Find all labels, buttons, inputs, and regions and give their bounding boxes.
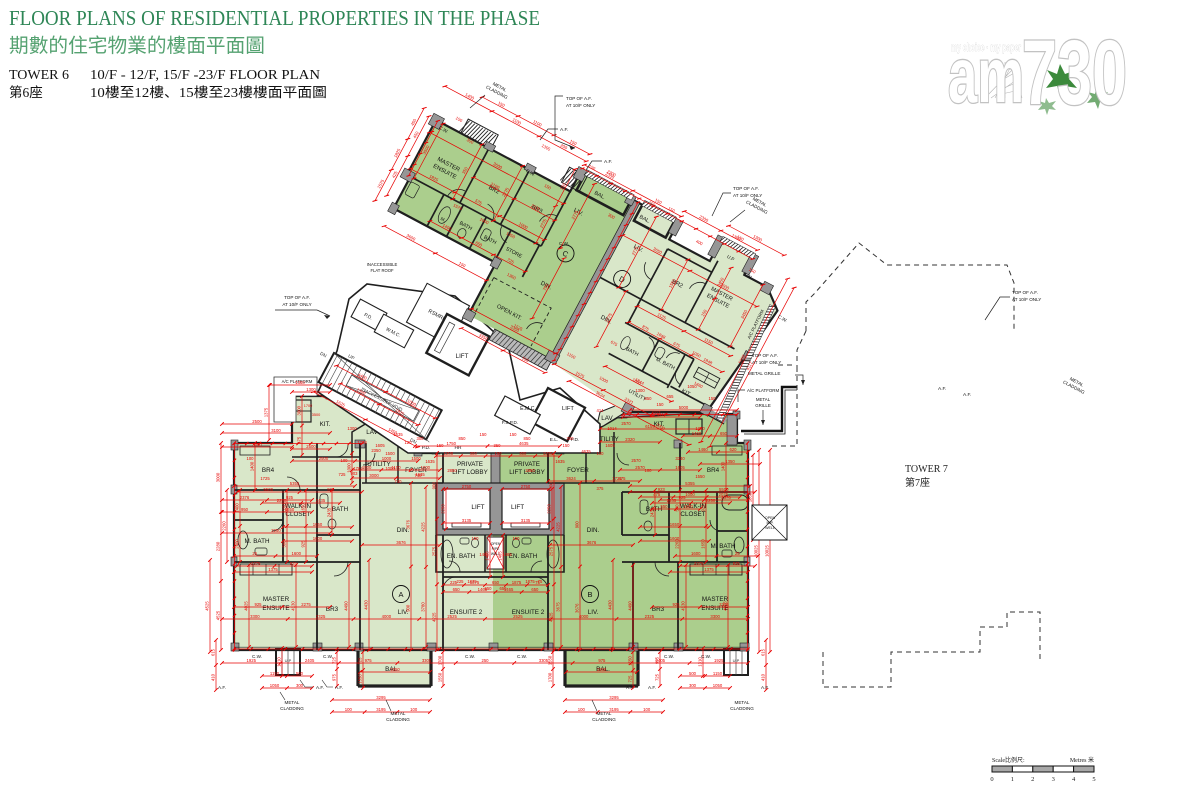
svg-text:615: 615 [761, 648, 766, 656]
svg-text:1550: 1550 [695, 474, 705, 479]
svg-text:3195: 3195 [376, 707, 386, 712]
svg-text:10025: 10025 [754, 544, 759, 556]
svg-text:1050: 1050 [270, 683, 280, 688]
svg-text:1600: 1600 [313, 536, 323, 541]
svg-text:1500: 1500 [385, 451, 395, 456]
svg-text:650: 650 [485, 586, 493, 591]
svg-text:C.W.: C.W. [465, 654, 475, 659]
svg-text:A.F.: A.F. [560, 127, 568, 133]
svg-text:BR4: BR4 [707, 467, 720, 474]
svg-text:2325: 2325 [645, 614, 655, 619]
svg-text:1300: 1300 [635, 388, 645, 393]
svg-text:100: 100 [410, 707, 418, 712]
svg-text:A.F.: A.F. [963, 392, 971, 398]
svg-text:1875: 1875 [512, 580, 522, 585]
svg-text:100: 100 [341, 458, 349, 463]
svg-text:KIT.: KIT. [320, 421, 331, 428]
svg-text:A.F.: A.F. [761, 685, 769, 690]
svg-text:150: 150 [437, 443, 445, 448]
svg-text:A.F.: A.F. [335, 685, 343, 690]
svg-text:TOP OF A.F.: TOP OF A.F. [733, 186, 759, 191]
svg-text:3100: 3100 [271, 428, 281, 433]
svg-text:2350: 2350 [371, 448, 381, 453]
svg-text:1460: 1460 [698, 447, 708, 452]
svg-text:2575: 2575 [432, 546, 437, 556]
svg-text:655: 655 [667, 394, 675, 399]
svg-text:3676: 3676 [575, 603, 580, 613]
svg-text:4025: 4025 [723, 601, 728, 611]
svg-text:DIN.: DIN. [587, 527, 600, 534]
svg-text:4000: 4000 [579, 614, 589, 619]
svg-text:500: 500 [282, 540, 287, 548]
svg-text:1200: 1200 [543, 451, 553, 456]
svg-text:AT 10/F ONLY: AT 10/F ONLY [1012, 297, 1041, 302]
svg-text:500: 500 [296, 671, 304, 676]
svg-text:TOP OF A.F.: TOP OF A.F. [752, 353, 778, 358]
svg-text:METAL GRILLE: METAL GRILLE [748, 371, 780, 376]
svg-text:1350: 1350 [725, 459, 735, 464]
svg-text:my choice · my paper: my choice · my paper [951, 42, 1021, 54]
svg-text:LIFT: LIFT [562, 406, 574, 412]
svg-text:1550: 1550 [548, 655, 553, 665]
svg-text:100: 100 [645, 468, 653, 473]
svg-text:4430: 4430 [364, 600, 369, 610]
svg-text:5355: 5355 [685, 481, 695, 486]
svg-text:4130: 4130 [291, 601, 296, 611]
svg-text:650: 650 [531, 587, 539, 592]
svg-text:2500: 2500 [319, 456, 329, 461]
svg-text:100: 100 [643, 707, 651, 712]
svg-text:1300: 1300 [347, 426, 357, 431]
svg-text:1635: 1635 [415, 472, 425, 477]
svg-text:AT 10/F ONLY: AT 10/F ONLY [282, 302, 311, 307]
svg-text:850: 850 [459, 436, 467, 441]
svg-text:4430: 4430 [608, 600, 613, 610]
svg-text:1000: 1000 [385, 466, 395, 471]
svg-text:150: 150 [494, 451, 502, 456]
svg-text:1605: 1605 [605, 443, 615, 448]
svg-text:A.F.: A.F. [938, 386, 946, 392]
svg-text:4117: 4117 [651, 410, 661, 415]
svg-text:150: 150 [510, 432, 518, 437]
svg-text:975: 975 [332, 673, 337, 681]
svg-text:METAL: METAL [756, 397, 771, 402]
svg-text:650: 650 [492, 580, 500, 585]
svg-text:MASTER: MASTER [263, 596, 290, 603]
svg-text:OPEN: OPEN [765, 516, 776, 520]
svg-text:2260: 2260 [675, 539, 680, 549]
svg-text:1400: 1400 [235, 503, 240, 513]
svg-text:925: 925 [254, 602, 262, 607]
svg-text:2570: 2570 [621, 421, 631, 426]
svg-text:150: 150 [709, 396, 717, 401]
svg-text:950: 950 [241, 507, 249, 512]
svg-text:3000: 3000 [216, 472, 221, 482]
svg-text:1200: 1200 [444, 451, 454, 456]
svg-text:650: 650 [500, 586, 508, 591]
svg-text:M. BATH: M. BATH [244, 538, 270, 545]
svg-text:975: 975 [598, 658, 606, 663]
svg-text:A/C PLATFORM: A/C PLATFORM [747, 388, 779, 393]
svg-text:WELL: WELL [765, 526, 775, 530]
svg-text:2260: 2260 [282, 503, 287, 513]
svg-text:2: 2 [1031, 776, 1034, 783]
svg-text:2400: 2400 [235, 539, 240, 549]
svg-text:1: 1 [1011, 776, 1014, 783]
svg-text:375: 375 [597, 486, 605, 491]
svg-text:300: 300 [519, 451, 527, 456]
svg-text:1050: 1050 [687, 384, 697, 389]
svg-text:150: 150 [472, 536, 480, 541]
svg-text:900: 900 [575, 521, 580, 529]
svg-text:3000: 3000 [297, 405, 302, 415]
svg-text:BR4: BR4 [262, 467, 275, 474]
svg-text:2260: 2260 [222, 521, 227, 531]
svg-text:250: 250 [481, 658, 489, 663]
svg-text:1000: 1000 [382, 456, 392, 461]
svg-text:A.F.: A.F. [316, 685, 324, 690]
svg-text:650: 650 [720, 431, 728, 436]
svg-text:2375: 2375 [251, 561, 261, 566]
svg-text:350: 350 [494, 443, 502, 448]
svg-text:5: 5 [1092, 776, 1095, 783]
svg-text:1460: 1460 [692, 431, 702, 436]
svg-text:175: 175 [297, 436, 302, 444]
svg-text:1700: 1700 [304, 404, 312, 408]
svg-text:GRILLE: GRILLE [755, 403, 771, 408]
svg-text:1550: 1550 [597, 667, 607, 672]
svg-text:300: 300 [470, 451, 478, 456]
svg-text:1050: 1050 [713, 683, 723, 688]
svg-text:LAV: LAV [601, 415, 613, 422]
svg-text:725: 725 [339, 472, 347, 477]
svg-text:900: 900 [549, 482, 554, 490]
svg-text:1800: 1800 [362, 465, 372, 470]
svg-text:300: 300 [417, 436, 425, 441]
svg-text:C.W.: C.W. [252, 654, 262, 659]
svg-text:550: 550 [660, 504, 668, 509]
svg-text:3: 3 [1052, 776, 1055, 783]
svg-text:3300: 3300 [710, 614, 720, 619]
svg-text:LIFT: LIFT [456, 353, 469, 360]
svg-text:AT 10/F ONLY: AT 10/F ONLY [566, 103, 595, 108]
svg-text:C.W.: C.W. [664, 654, 674, 659]
svg-text:1465: 1465 [479, 552, 489, 557]
svg-text:LIFT: LIFT [471, 504, 484, 511]
svg-text:TOWER 7: TOWER 7 [905, 464, 948, 475]
svg-text:1700: 1700 [548, 672, 553, 682]
svg-text:PIPE: PIPE [492, 547, 500, 551]
svg-text:1500: 1500 [411, 456, 421, 461]
svg-text:2500: 2500 [306, 444, 316, 449]
svg-text:300: 300 [567, 436, 575, 441]
svg-text:Scale比例尺:: Scale比例尺: [992, 756, 1025, 764]
svg-text:ENSUITE: ENSUITE [262, 605, 289, 612]
svg-text:3330: 3330 [675, 456, 685, 461]
svg-text:3305: 3305 [422, 658, 432, 663]
svg-text:620: 620 [729, 447, 737, 452]
svg-text:B: B [587, 590, 592, 599]
svg-text:1605: 1605 [375, 443, 385, 448]
svg-text:100: 100 [578, 707, 586, 712]
svg-text:120: 120 [405, 440, 413, 445]
svg-text:2250: 2250 [547, 504, 552, 514]
svg-text:FLOOR PLANS OF RESIDENTIAL PRO: FLOOR PLANS OF RESIDENTIAL PROPERTIES IN… [9, 6, 540, 30]
svg-text:1000: 1000 [421, 465, 431, 470]
svg-text:4000: 4000 [382, 614, 392, 619]
svg-text:100: 100 [345, 707, 353, 712]
svg-text:4225: 4225 [432, 612, 437, 622]
svg-text:100: 100 [597, 451, 605, 456]
svg-text:300: 300 [689, 683, 697, 688]
svg-text:975: 975 [365, 658, 373, 663]
svg-text:3780: 3780 [421, 602, 426, 612]
svg-text:2376: 2376 [240, 495, 250, 500]
svg-text:A: A [398, 590, 403, 599]
svg-text:期數的住宅物業的樓面平面圖: 期數的住宅物業的樓面平面圖 [9, 35, 265, 57]
svg-text:METAL: METAL [735, 700, 750, 705]
svg-text:4490: 4490 [628, 601, 633, 611]
svg-text:U.P: U.P [285, 658, 292, 663]
svg-text:615: 615 [211, 648, 216, 656]
svg-text:2500: 2500 [252, 419, 262, 424]
svg-text:第7座: 第7座 [905, 476, 930, 489]
svg-text:4225: 4225 [556, 522, 561, 532]
svg-text:2250: 2250 [441, 504, 446, 514]
svg-text:1550: 1550 [438, 672, 443, 682]
svg-text:TOP OF A.F.: TOP OF A.F. [1012, 290, 1038, 295]
svg-text:410: 410 [761, 673, 766, 681]
svg-text:C.W.: C.W. [517, 654, 527, 659]
svg-text:AT 10/F ONLY: AT 10/F ONLY [733, 193, 762, 198]
svg-text:3676: 3676 [406, 519, 411, 529]
svg-text:925: 925 [733, 561, 741, 566]
svg-text:C.W.: C.W. [323, 654, 333, 659]
svg-text:A.F.: A.F. [218, 685, 226, 690]
svg-text:1375: 1375 [704, 567, 714, 572]
svg-text:1650: 1650 [313, 522, 323, 527]
svg-text:1400: 1400 [250, 461, 255, 471]
svg-text:1550: 1550 [390, 667, 400, 672]
svg-text:475: 475 [619, 476, 627, 481]
svg-text:850: 850 [524, 436, 532, 441]
svg-text:Metres 米: Metres 米 [1070, 756, 1094, 764]
svg-text:BATH: BATH [332, 506, 349, 513]
svg-text:METAL: METAL [597, 711, 612, 716]
svg-text:1635: 1635 [425, 459, 435, 464]
svg-text:2250: 2250 [271, 528, 281, 533]
svg-text:5355: 5355 [290, 481, 300, 486]
svg-text:4130: 4130 [681, 601, 686, 611]
svg-text:CLADDING: CLADDING [592, 717, 616, 722]
svg-text:M. BATH: M. BATH [710, 543, 736, 550]
svg-text:1465: 1465 [502, 552, 512, 557]
svg-text:4635: 4635 [519, 441, 529, 446]
svg-text:1700: 1700 [438, 655, 443, 665]
svg-text:2376: 2376 [721, 495, 731, 500]
svg-text:IMP.: IMP. [767, 521, 774, 525]
svg-text:4490: 4490 [344, 601, 349, 611]
svg-text:C.W.: C.W. [559, 241, 569, 246]
svg-text:TOP OF A.F.: TOP OF A.F. [284, 295, 310, 300]
svg-text:2750: 2750 [521, 484, 531, 489]
svg-text:150: 150 [513, 536, 521, 541]
svg-text:EN. BATH: EN. BATH [447, 553, 476, 560]
svg-text:2405: 2405 [305, 658, 315, 663]
svg-text:1500: 1500 [683, 504, 693, 509]
svg-text:METAL: METAL [391, 711, 406, 716]
svg-text:1550: 1550 [628, 656, 633, 666]
svg-text:1150: 1150 [713, 671, 723, 676]
svg-text:3135: 3135 [521, 518, 531, 523]
svg-text:1875: 1875 [467, 579, 477, 584]
svg-text:3676: 3676 [396, 540, 406, 545]
svg-text:AT 10/F ONLY: AT 10/F ONLY [752, 360, 781, 365]
svg-text:FLAT ROOF: FLAT ROOF [370, 268, 394, 273]
svg-text:3300: 3300 [250, 614, 260, 619]
svg-text:900: 900 [432, 482, 437, 490]
svg-text:LIV.: LIV. [588, 609, 599, 616]
svg-text:CLADDING: CLADDING [386, 717, 410, 722]
svg-text:725: 725 [628, 675, 633, 683]
svg-text:1000: 1000 [685, 492, 695, 497]
svg-text:PRIVATE: PRIVATE [457, 461, 483, 468]
svg-text:475: 475 [653, 492, 661, 497]
svg-text:1605: 1605 [675, 465, 685, 470]
svg-text:2435: 2435 [650, 507, 655, 517]
svg-text:1375: 1375 [268, 567, 278, 572]
svg-text:414: 414 [597, 408, 605, 413]
svg-text:1150: 1150 [270, 671, 280, 676]
svg-text:2375: 2375 [694, 561, 704, 566]
svg-text:3000: 3000 [369, 473, 379, 478]
svg-text:410: 410 [211, 673, 216, 681]
svg-text:LIFT: LIFT [511, 504, 524, 511]
svg-text:2850: 2850 [525, 468, 535, 473]
svg-text:740: 740 [395, 479, 403, 484]
svg-text:2750: 2750 [462, 484, 472, 489]
svg-text:F.S.P.D.: F.S.P.D. [502, 420, 518, 425]
svg-text:1600: 1600 [292, 551, 302, 556]
svg-text:1550: 1550 [358, 674, 363, 684]
svg-text:1650: 1650 [701, 539, 706, 549]
svg-text:2320: 2320 [625, 437, 635, 442]
svg-text:1635: 1635 [393, 432, 403, 437]
svg-text:725: 725 [655, 673, 660, 681]
svg-text:LIFT LOBBY: LIFT LOBBY [452, 469, 488, 476]
svg-text:PRIVATE: PRIVATE [514, 461, 540, 468]
svg-text:1635: 1635 [555, 459, 565, 464]
svg-text:CLADDING: CLADDING [280, 706, 304, 711]
svg-text:2525: 2525 [513, 614, 523, 619]
svg-text:4525: 4525 [205, 601, 210, 611]
svg-text:2575: 2575 [549, 546, 554, 556]
svg-text:1750: 1750 [447, 441, 457, 446]
svg-text:A.F.: A.F. [648, 685, 656, 690]
svg-text:METAL: METAL [285, 700, 300, 705]
svg-text:4525: 4525 [216, 610, 221, 620]
svg-text:650: 650 [645, 396, 653, 401]
svg-text:4225: 4225 [421, 522, 426, 532]
svg-text:4225: 4225 [549, 612, 554, 622]
svg-text:975: 975 [655, 656, 660, 664]
svg-text:25: 25 [735, 551, 740, 556]
svg-text:1875: 1875 [525, 579, 535, 584]
svg-text:1014: 1014 [607, 426, 617, 431]
svg-text:E.L.: E.L. [550, 437, 559, 443]
svg-text:1600: 1600 [691, 551, 701, 556]
svg-text:75: 75 [538, 579, 543, 584]
svg-text:2325: 2325 [316, 614, 326, 619]
svg-text:2525: 2525 [447, 614, 457, 619]
svg-text:TOP OF A.F.: TOP OF A.F. [566, 96, 592, 101]
svg-text:1650: 1650 [301, 503, 306, 513]
svg-text:6155: 6155 [645, 424, 655, 429]
svg-text:730: 730 [1022, 22, 1127, 124]
svg-text:1400: 1400 [721, 461, 726, 471]
svg-text:3500: 3500 [312, 413, 320, 417]
svg-text:500: 500 [689, 671, 697, 676]
svg-text:925: 925 [678, 495, 686, 500]
svg-text:3295: 3295 [609, 695, 619, 700]
svg-text:1650: 1650 [670, 522, 680, 527]
svg-text:150: 150 [563, 443, 571, 448]
svg-text:1310: 1310 [277, 657, 282, 667]
svg-text:10/F - 12/F, 15/F -23/F FLOOR: 10/F - 12/F, 15/F -23/F FLOOR PLAN [90, 68, 320, 83]
svg-text:25: 25 [252, 551, 257, 556]
svg-text:225: 225 [457, 579, 465, 584]
svg-text:INACCESSIBLE: INACCESSIBLE [367, 262, 398, 267]
svg-text:725: 725 [358, 657, 363, 665]
svg-text:10025: 10025 [765, 544, 770, 556]
svg-text:EN. BATH: EN. BATH [509, 553, 538, 560]
svg-text:925: 925 [672, 602, 680, 607]
svg-text:C.W.: C.W. [701, 654, 711, 659]
svg-text:3676: 3676 [587, 540, 597, 545]
svg-text:650: 650 [453, 587, 461, 592]
svg-text:2435: 2435 [327, 507, 332, 517]
svg-text:U.P: U.P [733, 658, 740, 663]
svg-text:1300: 1300 [306, 387, 316, 392]
svg-text:A.F.: A.F. [626, 685, 634, 690]
svg-text:925: 925 [301, 540, 306, 548]
svg-text:TOWER 6: TOWER 6 [9, 68, 69, 83]
svg-text:1375: 1375 [264, 407, 269, 417]
svg-text:E.M.C.: E.M.C. [520, 406, 536, 412]
svg-text:900: 900 [406, 604, 411, 612]
svg-text:1350: 1350 [295, 380, 305, 385]
svg-text:2280: 2280 [216, 541, 221, 551]
svg-text:150: 150 [657, 402, 665, 407]
svg-text:5000: 5000 [679, 405, 689, 410]
svg-text:FOYER: FOYER [567, 467, 589, 474]
svg-text:925: 925 [701, 504, 706, 512]
svg-text:903: 903 [351, 471, 359, 476]
svg-text:4635: 4635 [581, 449, 591, 454]
svg-text:1788: 1788 [357, 440, 367, 445]
svg-text:10樓至12樓、15樓至23樓樓面平面圖: 10樓至12樓、15樓至23樓樓面平面圖 [90, 85, 327, 100]
svg-text:A.F.: A.F. [604, 159, 612, 165]
svg-text:1725: 1725 [260, 476, 270, 481]
svg-text:100: 100 [247, 456, 255, 461]
svg-text:3675: 3675 [556, 602, 561, 612]
svg-text:第6座: 第6座 [9, 84, 43, 100]
svg-text:4025: 4025 [244, 601, 249, 611]
svg-text:2850: 2850 [447, 468, 457, 473]
svg-text:3624: 3624 [566, 476, 576, 481]
svg-text:150: 150 [480, 432, 488, 437]
svg-text:3295: 3295 [376, 695, 386, 700]
